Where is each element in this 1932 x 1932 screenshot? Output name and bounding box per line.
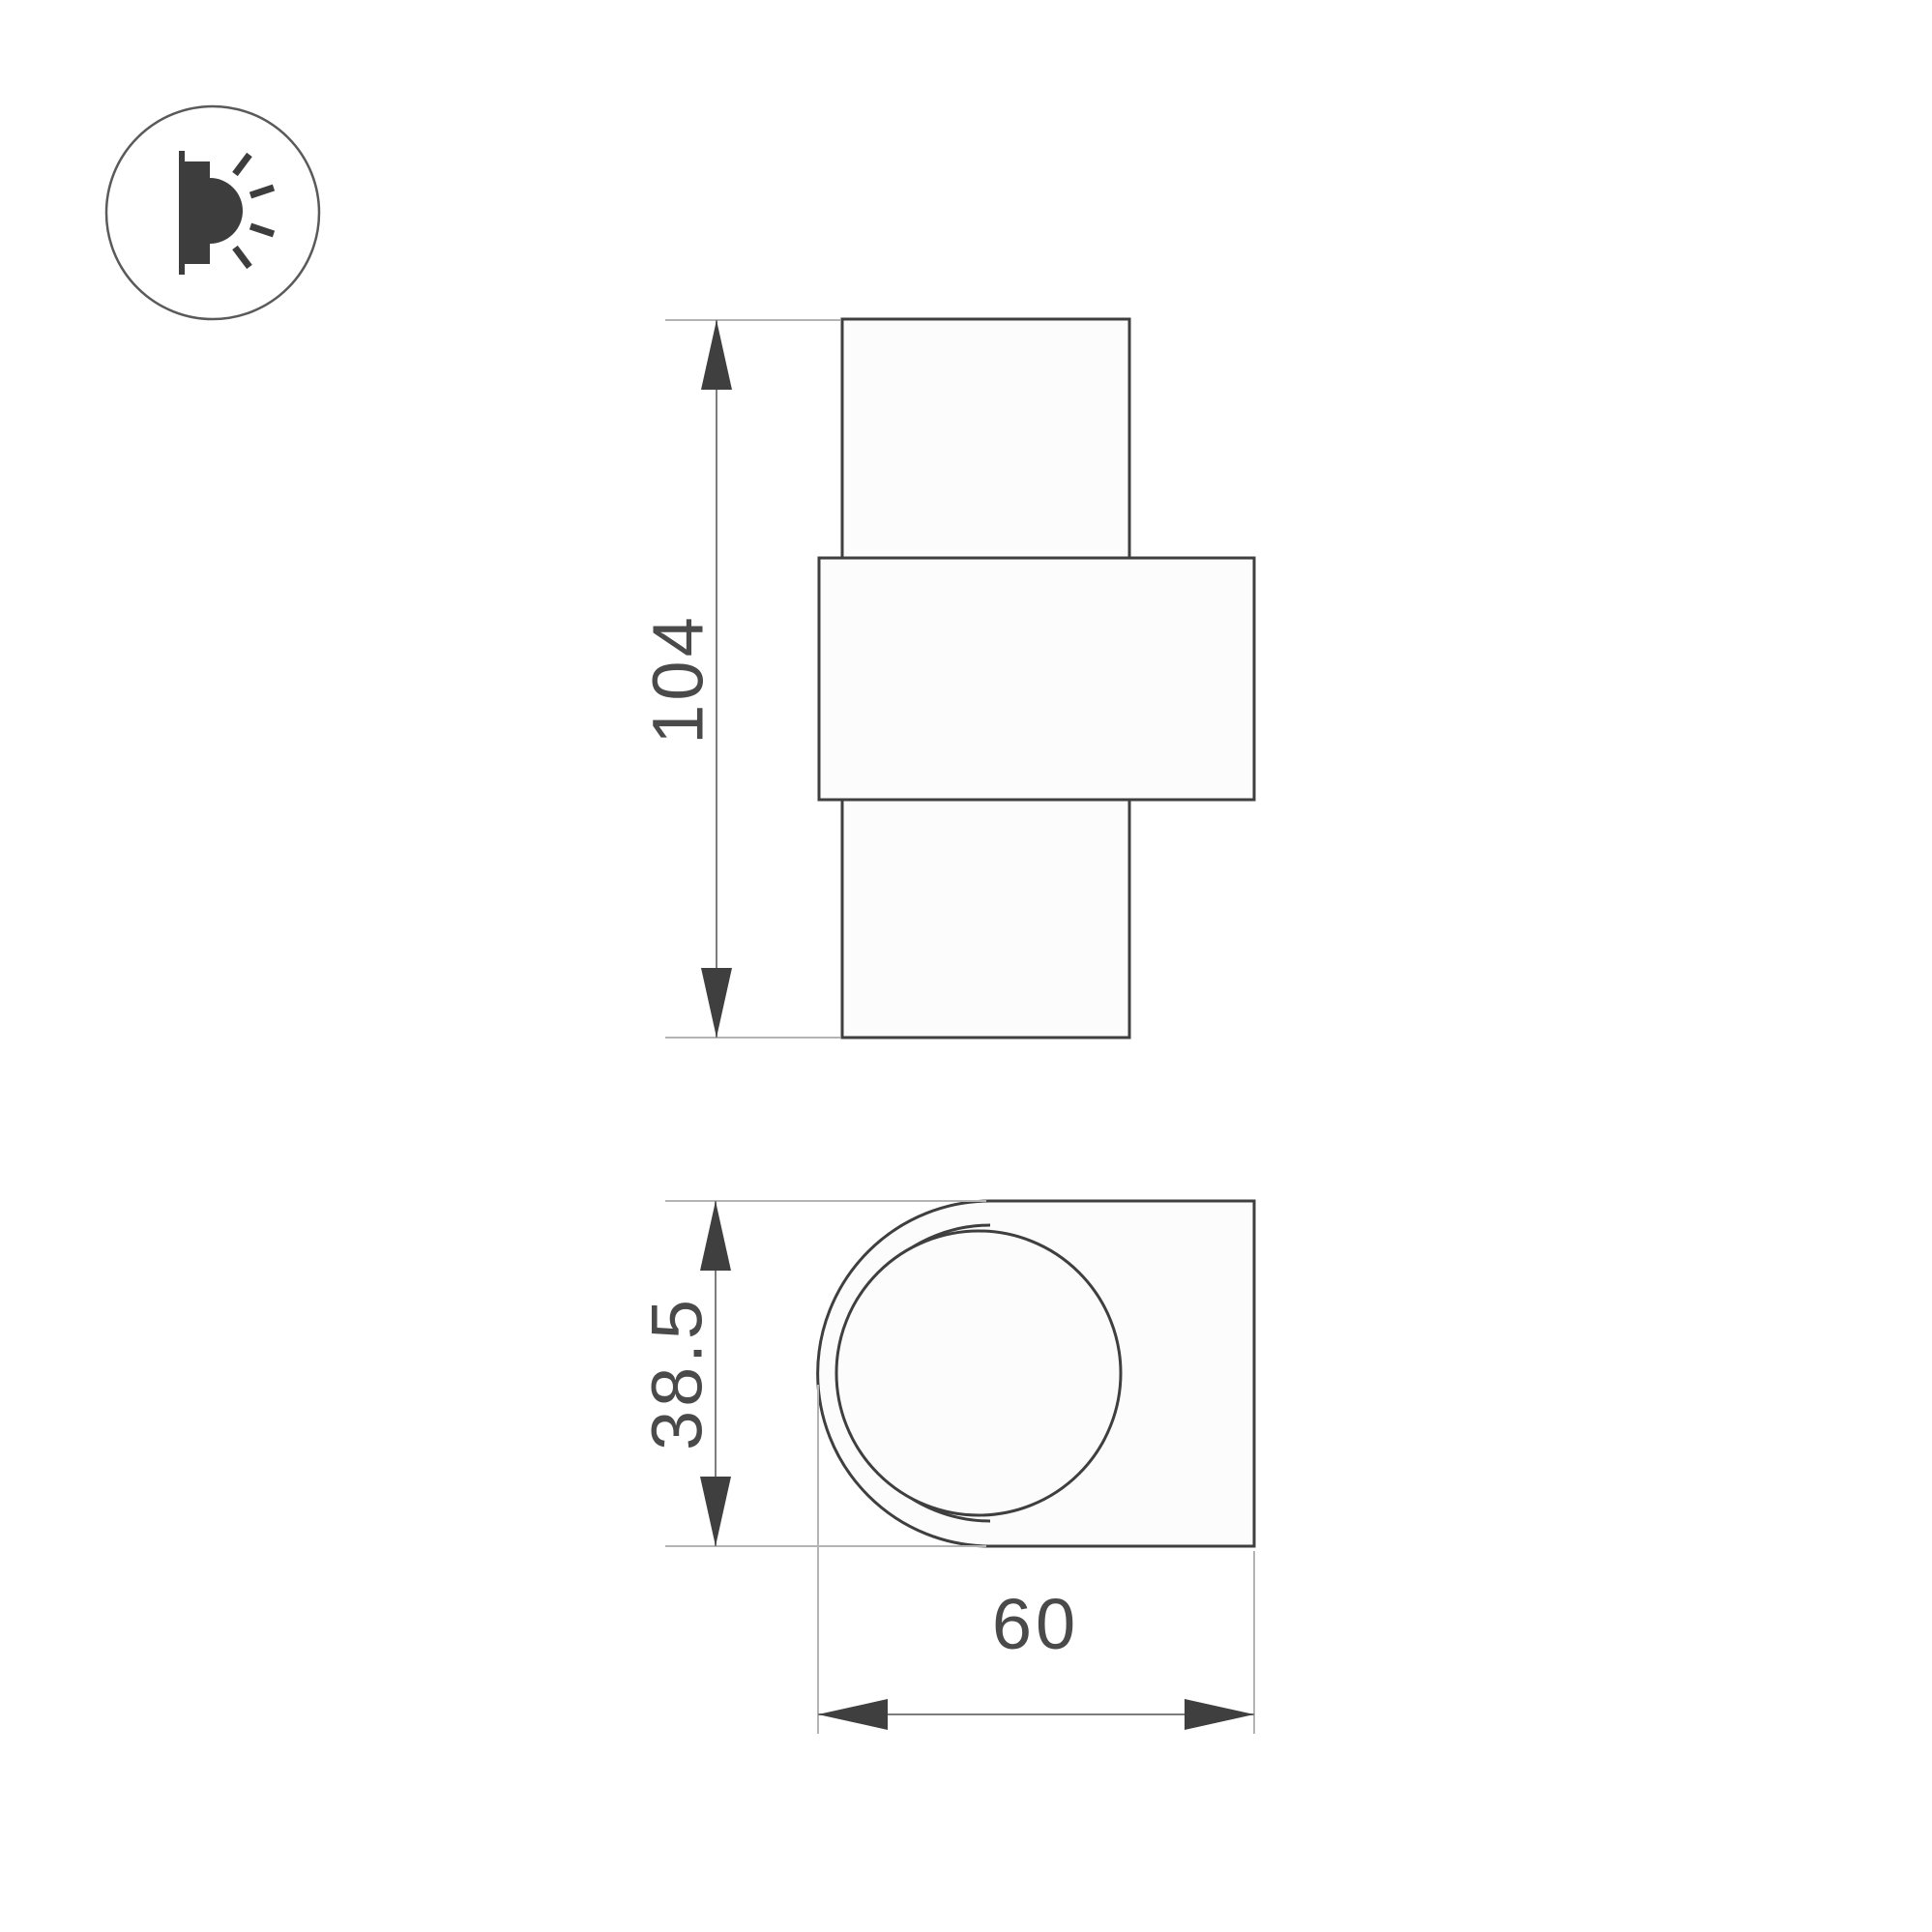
- width-dimension-label: 60: [992, 1584, 1079, 1664]
- arrow-up-icon: [701, 320, 732, 390]
- front-middle-band: [819, 558, 1254, 800]
- depth-dimension-label: 38.5: [637, 1296, 717, 1450]
- front-lower-cylinder: [842, 800, 1129, 1038]
- arrow-up-icon: [700, 1201, 731, 1271]
- height-dimension-label: 104: [638, 613, 718, 744]
- front-view: 104: [638, 319, 1255, 1038]
- top-view-lens-circle: [836, 1231, 1121, 1515]
- lamp-type-icon: [106, 106, 319, 319]
- front-upper-cylinder: [842, 319, 1129, 558]
- arrow-right-icon: [1185, 1699, 1254, 1730]
- arrow-down-icon: [700, 1477, 731, 1546]
- arrow-left-icon: [818, 1699, 888, 1730]
- technical-drawing-canvas: 104 38.5 60: [0, 0, 1932, 1932]
- top-view: 38.5 60: [637, 1201, 1255, 1734]
- arrow-down-icon: [701, 968, 732, 1038]
- lamp-body-icon: [184, 161, 210, 264]
